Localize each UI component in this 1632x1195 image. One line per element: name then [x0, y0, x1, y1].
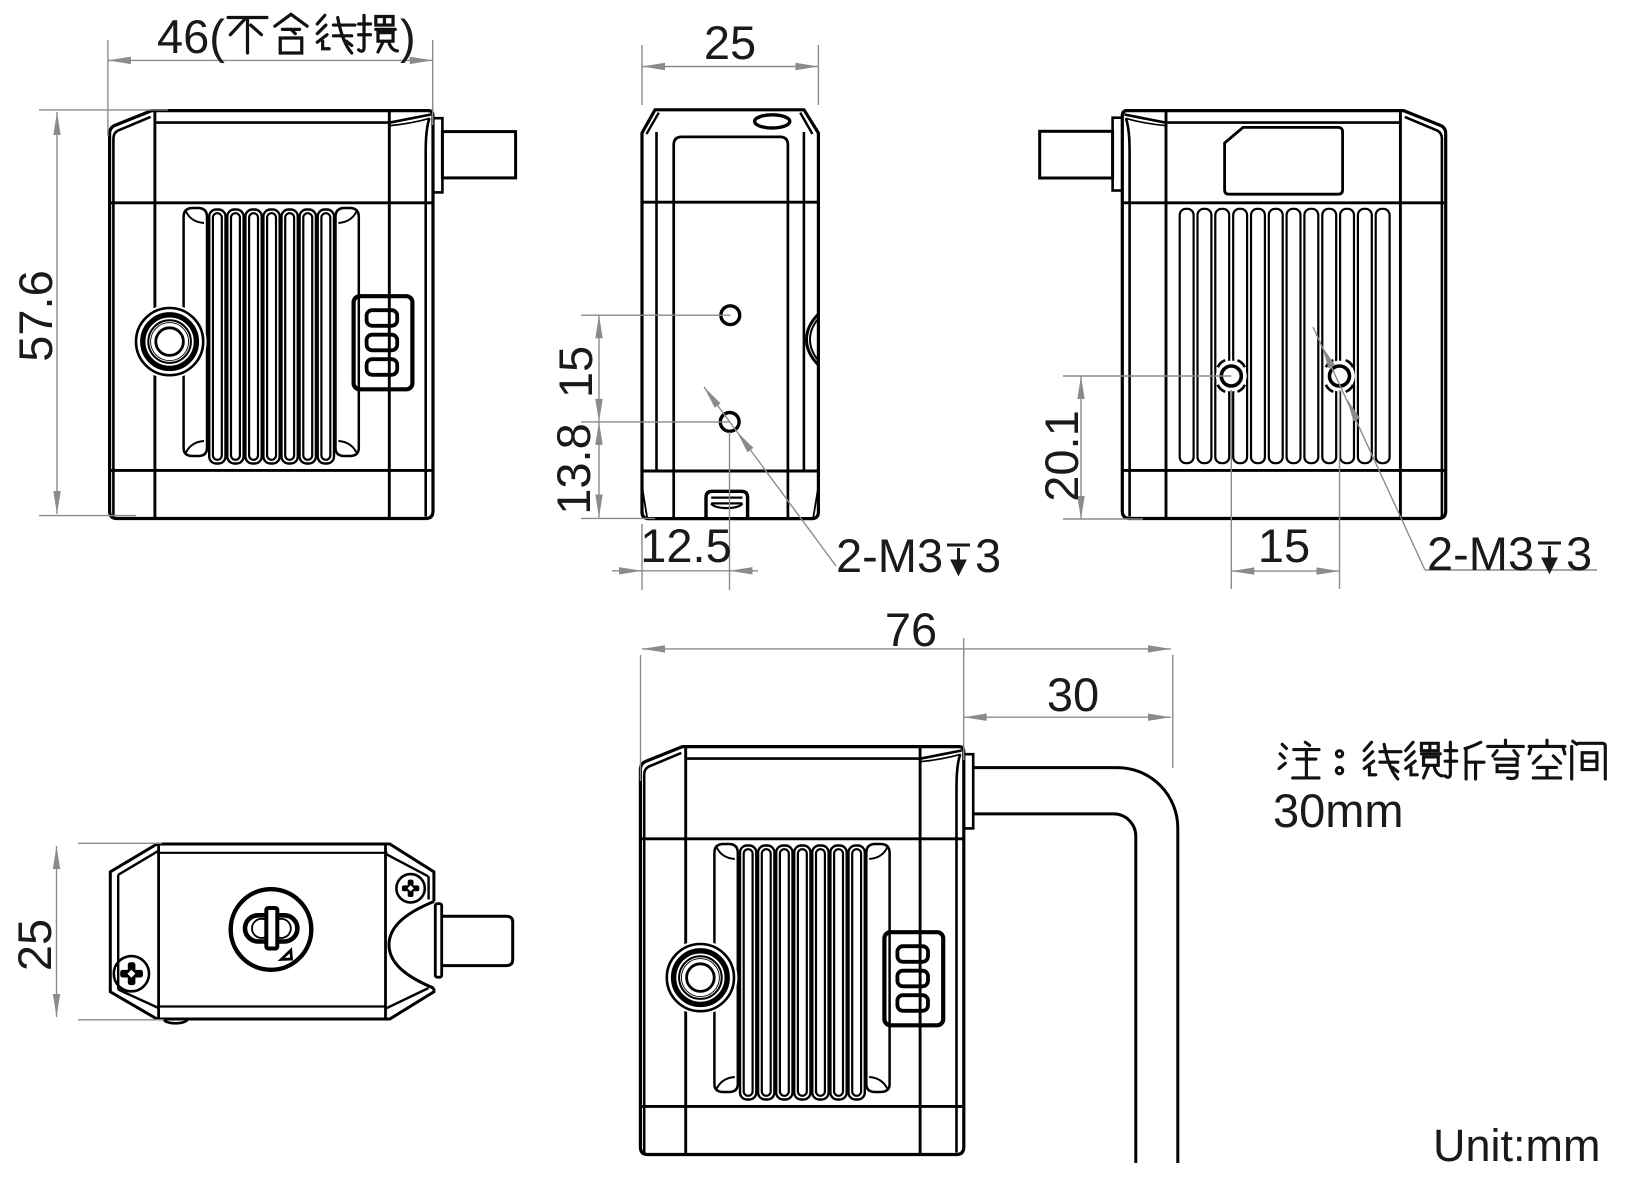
svg-text:2-M3: 2-M3	[1427, 527, 1534, 580]
svg-text:Unit:mm: Unit:mm	[1433, 1120, 1601, 1171]
svg-text:20.1: 20.1	[1035, 410, 1088, 501]
svg-text:15: 15	[1258, 519, 1310, 572]
svg-text:46(: 46(	[157, 10, 225, 63]
svg-text:25: 25	[704, 16, 756, 69]
svg-text:25: 25	[8, 919, 61, 971]
svg-text:3: 3	[1566, 527, 1592, 580]
svg-text:15: 15	[549, 346, 602, 398]
svg-text:76: 76	[885, 603, 937, 656]
svg-text:13.8: 13.8	[547, 423, 600, 514]
svg-text:57.6: 57.6	[9, 270, 62, 361]
svg-text:3: 3	[975, 529, 1001, 582]
svg-text:2-M3: 2-M3	[836, 529, 943, 582]
svg-text:12.5: 12.5	[640, 519, 731, 572]
svg-text:): )	[400, 10, 416, 63]
svg-text:30: 30	[1047, 668, 1099, 721]
svg-text:30mm: 30mm	[1273, 784, 1404, 837]
